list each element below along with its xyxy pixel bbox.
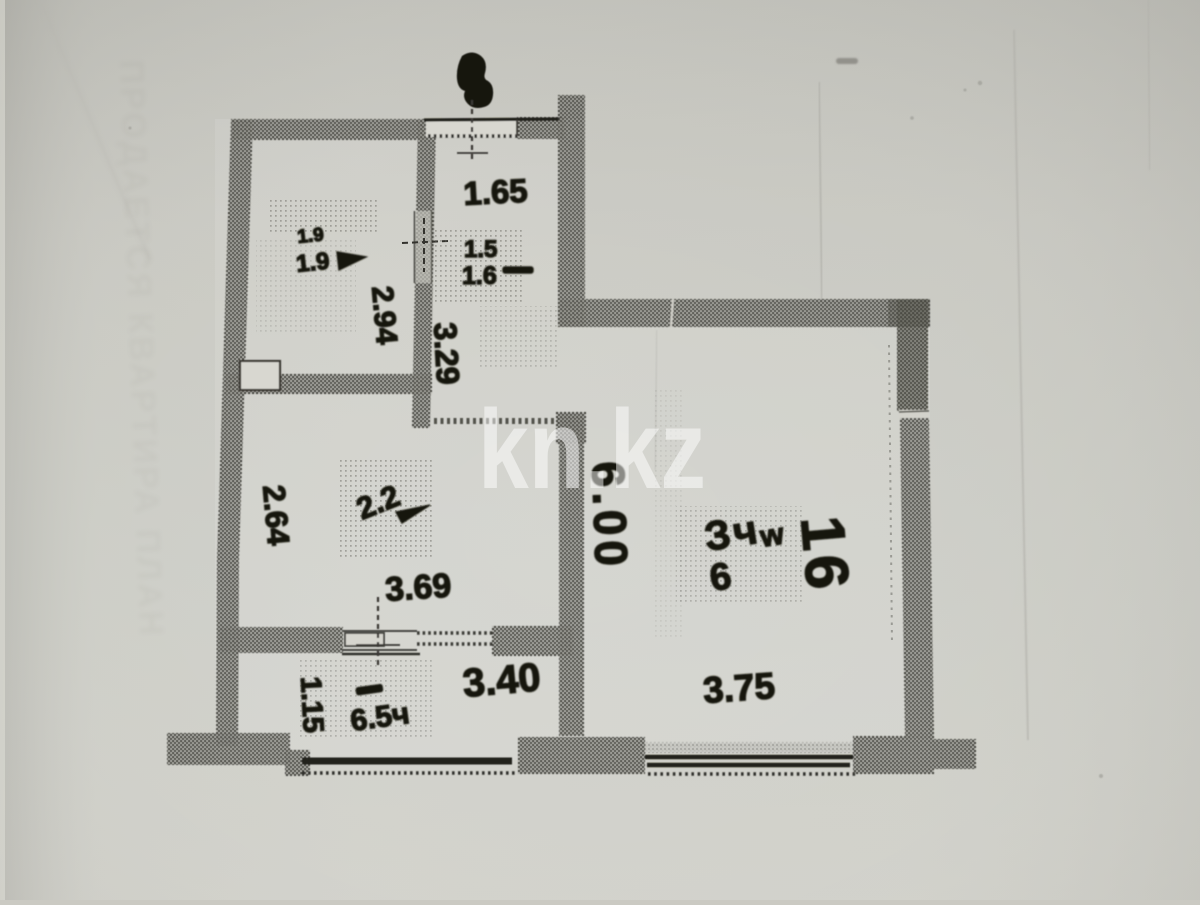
svg-text:3.75: 3.75 bbox=[702, 665, 777, 711]
svg-text:1.5: 1.5 bbox=[464, 236, 497, 263]
svg-text:16: 16 bbox=[788, 513, 863, 596]
svg-text:kn.kz: kn.kz bbox=[478, 387, 706, 512]
svg-text:3.29: 3.29 bbox=[427, 321, 466, 385]
svg-text:3.69: 3.69 bbox=[384, 566, 453, 609]
svg-text:2.64: 2.64 bbox=[256, 484, 296, 548]
svg-text:1.65: 1.65 bbox=[462, 172, 528, 212]
svg-text:3.40: 3.40 bbox=[461, 655, 542, 706]
svg-text:1.6: 1.6 bbox=[462, 262, 497, 290]
svg-text:1.9: 1.9 bbox=[296, 224, 324, 248]
svg-text:2.94: 2.94 bbox=[365, 285, 403, 346]
svg-text:1.15: 1.15 bbox=[294, 676, 329, 734]
svg-text:1.9: 1.9 bbox=[295, 248, 331, 278]
svg-text:Зч: Зч bbox=[701, 506, 763, 560]
